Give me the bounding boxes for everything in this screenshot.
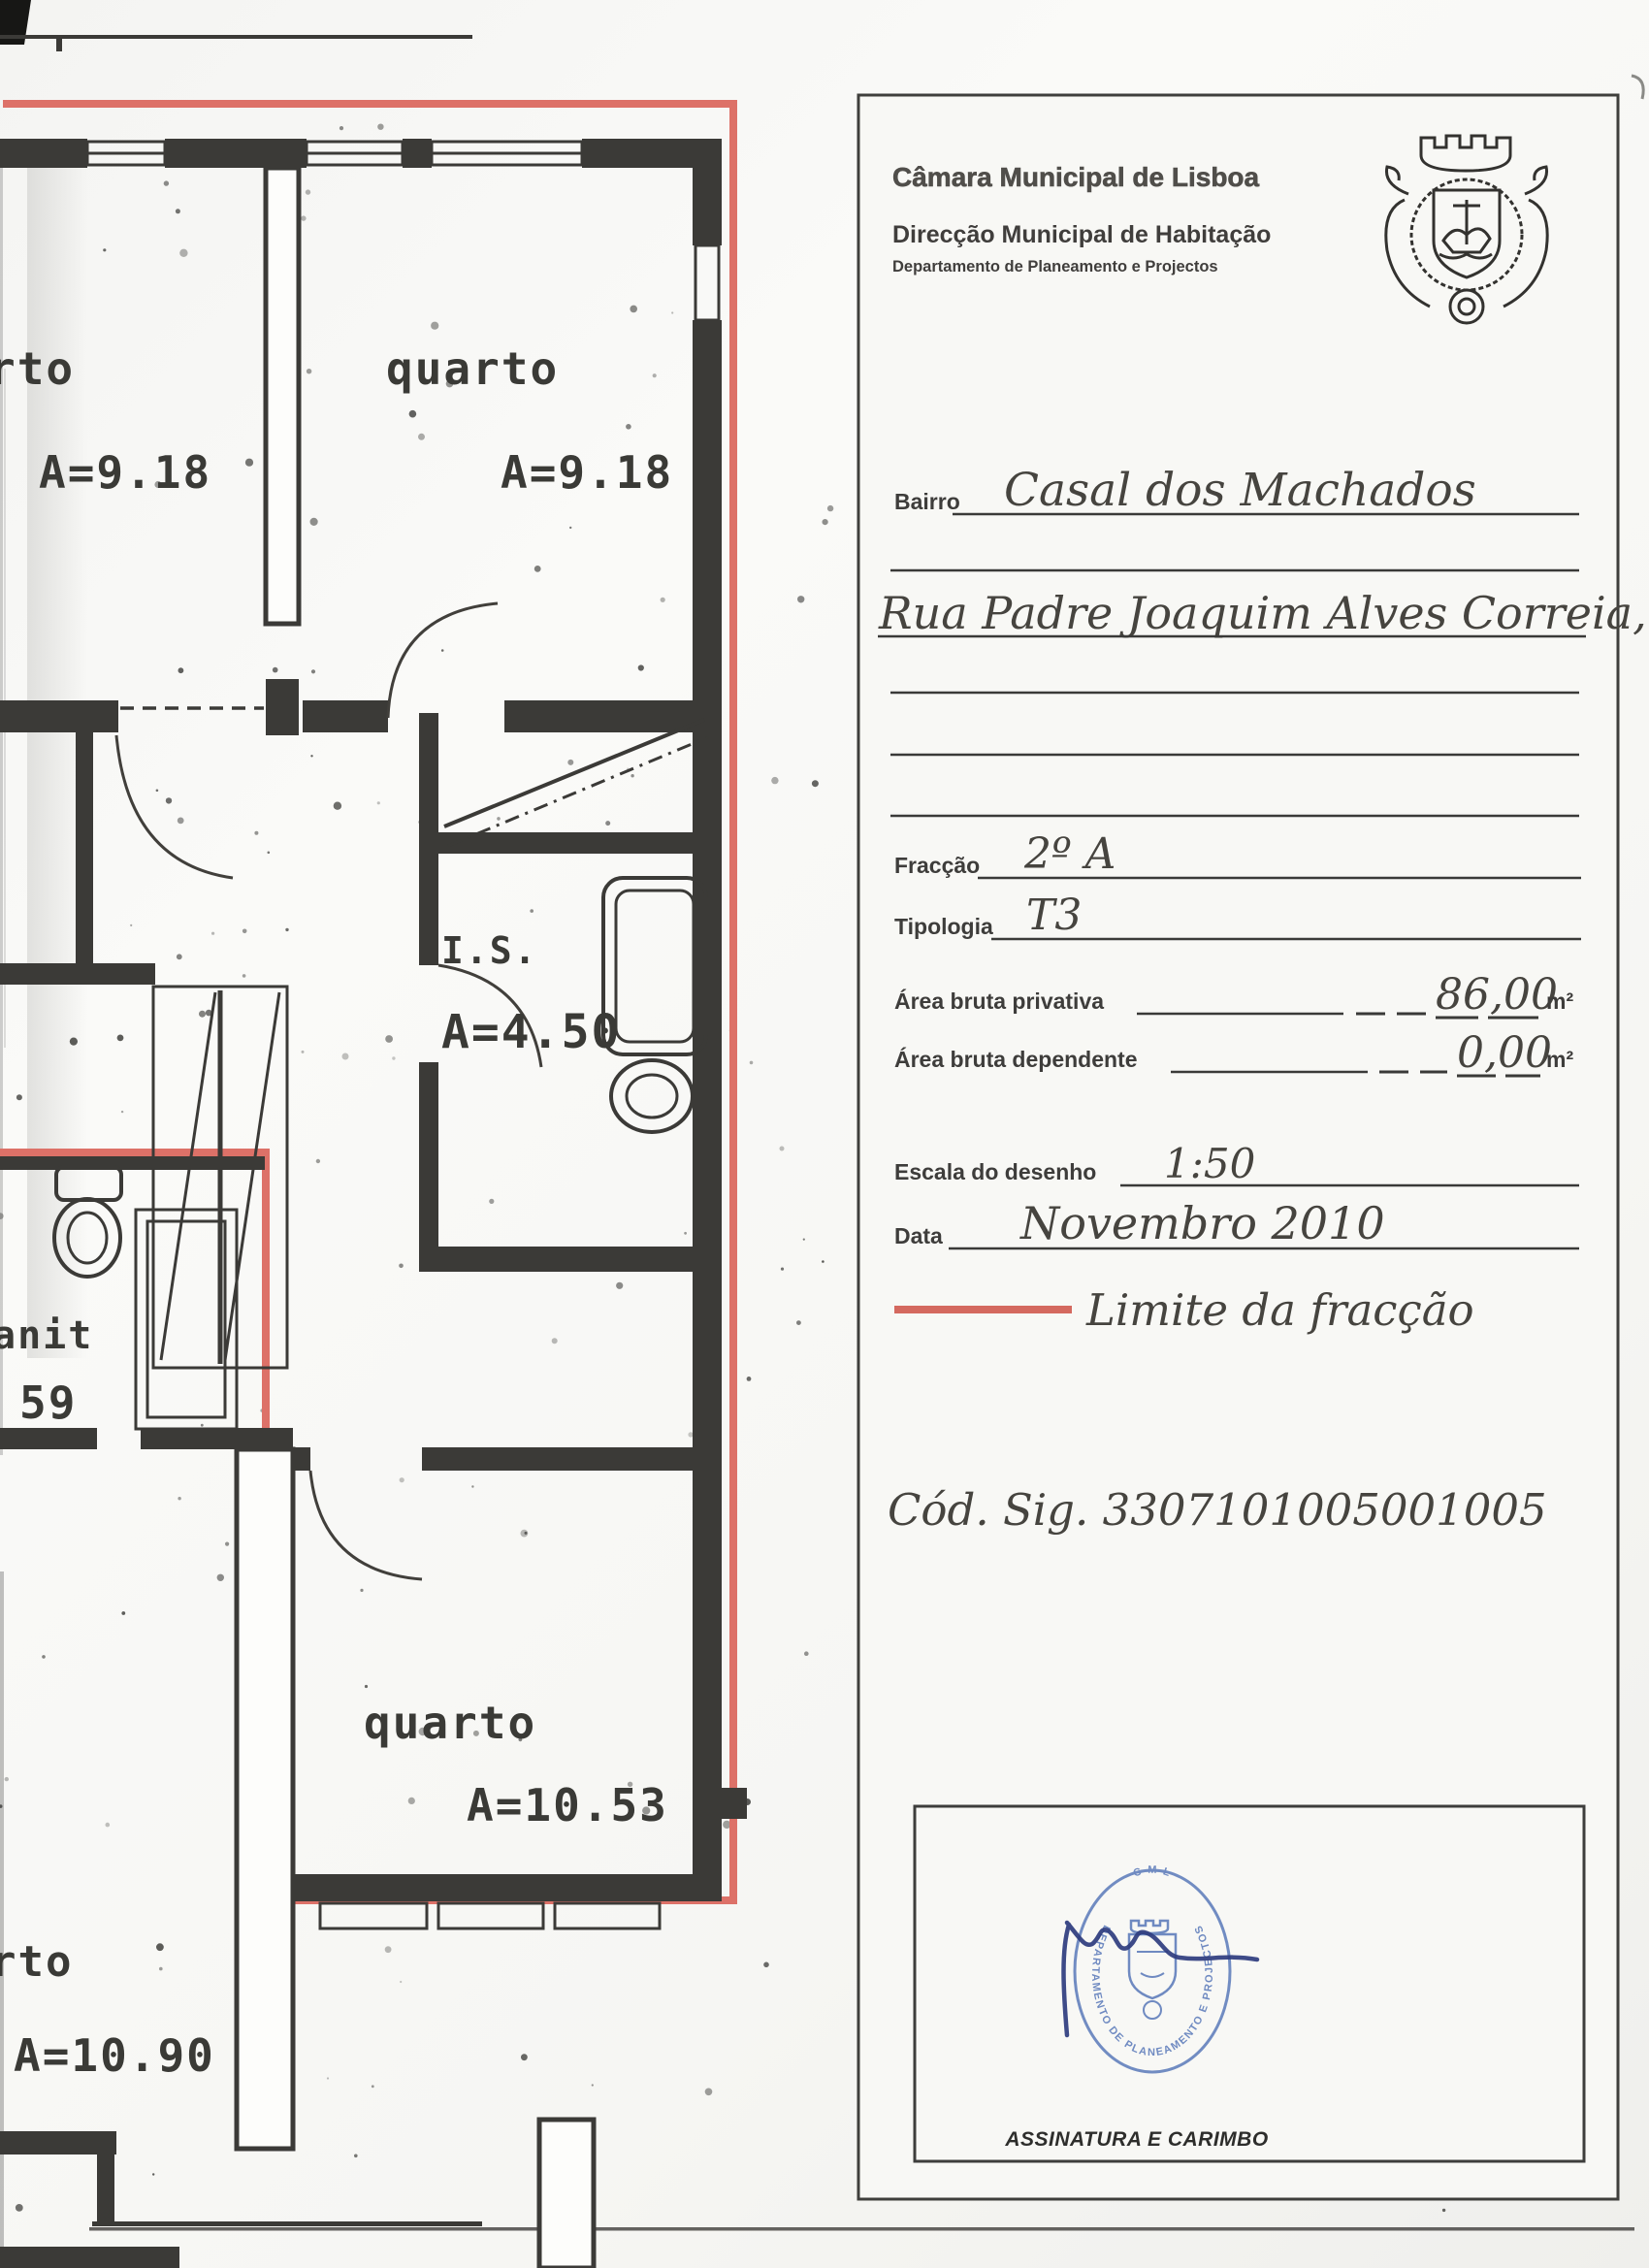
room-label: quarto [364,1697,536,1749]
escala-label: Escala do desenho [894,1159,1096,1184]
signature-caption: ASSINATURA E CARIMBO [1004,2128,1268,2151]
directorate-title: Direcção Municipal de Habitação [892,221,1271,248]
room-label: rto [0,1937,73,1987]
escala-value: 1:50 [1164,1140,1255,1187]
area-dependente-label: Área bruta dependente [894,1046,1138,1072]
area-dependente-value: 0,00 [1457,1028,1552,1078]
bairro-label: Bairro [894,489,960,514]
area-privativa-value: 86,00 [1436,970,1558,1020]
room-area: A=10.53 [467,1779,668,1831]
area-unit: m² [1546,988,1573,1014]
room-labels: rto A=9.18 quarto A=9.18 I.S. A=4.50 ani… [0,342,673,2082]
fraction-boundary-line [0,104,733,1900]
municipality-title: Câmara Municipal de Lisboa [892,162,1260,192]
room-area: 59 [19,1377,77,1429]
tipologia-value: T3 [1026,891,1082,940]
info-panel: Câmara Municipal de Lisboa Direcção Muni… [858,95,1649,2199]
address-value: Rua Padre Joaquim Alves Correia, nº 6 [878,587,1649,639]
area-privativa-label: Área bruta privativa [894,988,1104,1014]
floor-plan: rto A=9.18 quarto A=9.18 I.S. A=4.50 ani… [0,104,747,2268]
room-label: quarto [386,342,559,395]
room-area: A=10.90 [14,2029,215,2082]
room-area: A=9.18 [501,446,673,499]
data-value: Novembro 2010 [1019,1197,1385,1249]
bairro-value: Casal dos Machados [1004,464,1476,517]
room-label: rto [0,342,75,395]
room-area: A=9.18 [39,446,211,499]
fraccao-label: Fracção [894,853,980,878]
scanned-floor-plan-document: rto A=9.18 quarto A=9.18 I.S. A=4.50 ani… [0,0,1649,2268]
room-label: I.S. [441,929,538,972]
data-label: Data [894,1223,943,1248]
cod-sig: Cód. Sig. 3307101005001005 [888,1484,1547,1536]
room-area: A=4.50 [441,1005,621,1059]
room-label: anit [0,1313,93,1358]
fraccao-value: 2º A [1023,829,1115,879]
legend-label: Limite da fracção [1085,1284,1474,1336]
department-title: Departamento de Planeamento e Projectos [892,258,1218,275]
tipologia-label: Tipologia [894,914,993,939]
area-unit-2: m² [1546,1047,1573,1072]
